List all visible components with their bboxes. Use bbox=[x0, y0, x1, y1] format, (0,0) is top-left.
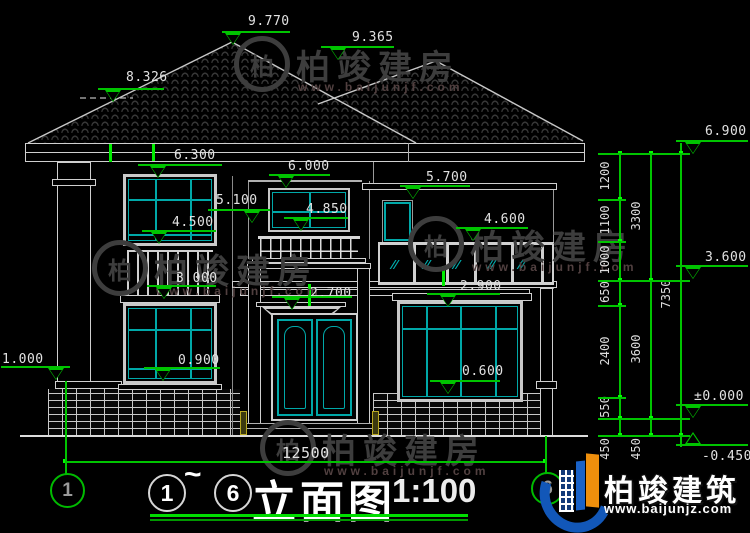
dim-label: 450 bbox=[598, 427, 612, 471]
elevation-label: 0.600 bbox=[462, 364, 504, 379]
elevation-triangle bbox=[155, 369, 171, 381]
watermark-monogram-icon: 柏 bbox=[408, 216, 464, 272]
elevation-label: -0.450 bbox=[702, 449, 750, 464]
elevation-label: ±0.000 bbox=[694, 389, 744, 404]
overall-dim-label: 12500 bbox=[282, 444, 330, 462]
dim-label: 3600 bbox=[629, 327, 643, 371]
dim-tick bbox=[598, 241, 626, 243]
axis-start-number: 1 bbox=[161, 480, 174, 507]
elevation-label: 2.900 bbox=[460, 279, 502, 294]
elevation-label: 5.100 bbox=[216, 193, 258, 208]
elevation-label: 0.900 bbox=[178, 353, 220, 368]
elevation-label: 4.850 bbox=[306, 202, 348, 217]
elevation-triangle bbox=[105, 90, 121, 102]
elevation-triangle bbox=[293, 219, 309, 231]
elevation-triangle bbox=[48, 368, 64, 380]
dim-tick bbox=[598, 435, 690, 437]
title-tilde: ~ bbox=[184, 458, 202, 492]
elevation-triangle bbox=[405, 187, 421, 199]
elevation-triangle bbox=[440, 382, 456, 394]
elevation-triangle bbox=[278, 176, 294, 188]
elevation-level-line bbox=[676, 444, 748, 446]
elevation-level-line bbox=[427, 293, 500, 295]
dim-tick bbox=[598, 280, 690, 282]
logo-building-icon bbox=[559, 470, 574, 512]
dim-label: 7350 bbox=[659, 272, 673, 316]
elevation-label: 3.600 bbox=[705, 250, 747, 265]
elevation-triangle bbox=[330, 48, 346, 60]
watermark-monogram-icon: 柏 bbox=[234, 36, 290, 92]
dim-tick bbox=[598, 305, 626, 307]
elevation-triangle bbox=[225, 33, 241, 45]
elevation-level-line bbox=[208, 209, 270, 211]
grid-bubble: 1 bbox=[50, 473, 85, 508]
watermark-url: www.baijunjf.com bbox=[472, 260, 638, 274]
elevation-label: 9.770 bbox=[248, 14, 290, 29]
axis-end-number: 6 bbox=[227, 480, 240, 507]
elevation-triangle bbox=[685, 406, 701, 418]
elevation-label: 6.900 bbox=[705, 124, 747, 139]
elevation-label: 5.700 bbox=[426, 170, 468, 185]
elevation-triangle bbox=[685, 267, 701, 279]
elevation-triangle bbox=[284, 298, 300, 310]
elevation-label: 4.600 bbox=[484, 212, 526, 227]
elevation-triangle-up bbox=[685, 432, 701, 444]
elevation-label: 8.326 bbox=[126, 70, 168, 85]
grid-extension-line bbox=[65, 381, 67, 474]
logo-url: www.baijunjz.com bbox=[604, 501, 732, 516]
elevation-label: 9.365 bbox=[352, 30, 394, 45]
elevation-label: 6.300 bbox=[174, 148, 216, 163]
dim-label: 650 bbox=[598, 270, 612, 314]
dim-tick bbox=[598, 199, 626, 201]
elevation-label: 6.000 bbox=[288, 159, 330, 174]
dim-label: 450 bbox=[629, 427, 643, 471]
dim-tick bbox=[598, 418, 690, 420]
logo-building-blue bbox=[576, 461, 585, 511]
dim-label: 3300 bbox=[629, 194, 643, 238]
dim-label: 550 bbox=[598, 385, 612, 429]
elevation-triangle bbox=[150, 166, 166, 178]
title-underline-2 bbox=[150, 519, 468, 521]
drawing-scale: 1:100 bbox=[392, 472, 476, 510]
dim-chain-line bbox=[680, 143, 682, 447]
elevation-triangle bbox=[151, 232, 167, 244]
title-axis-start-bubble: 1 bbox=[148, 474, 186, 512]
elevation-triangle bbox=[440, 295, 456, 307]
dim-label: 2400 bbox=[598, 329, 612, 373]
dim-chain-line bbox=[619, 153, 621, 435]
elevation-drawing: ∕∕ ∕∕ ∕∕ ∕∕ ∕∕ 9.7709.3658.3266.3006.000… bbox=[0, 0, 750, 533]
dim-chain-line bbox=[650, 153, 652, 435]
elevation-triangle bbox=[465, 229, 481, 241]
elevation-triangle bbox=[156, 287, 172, 299]
dim-tick bbox=[598, 153, 690, 155]
elevation-triangle bbox=[244, 211, 260, 223]
elevation-label: 3.000 bbox=[176, 271, 218, 286]
elevation-label: 4.500 bbox=[172, 215, 214, 230]
watermark-monogram-icon: 柏 bbox=[92, 240, 148, 296]
dim-tick bbox=[598, 397, 626, 399]
elevation-label: 1.000 bbox=[2, 352, 44, 367]
logo-building-orange bbox=[586, 453, 599, 507]
watermark-url: www.baijunjf.com bbox=[298, 80, 464, 94]
grid-extension-line bbox=[545, 436, 547, 473]
elevation-label: 2.700 bbox=[310, 286, 352, 301]
dim-label: 1100 bbox=[598, 198, 612, 242]
dim-label: 1200 bbox=[598, 154, 612, 198]
title-axis-end-bubble: 6 bbox=[214, 474, 252, 512]
title-underline-1 bbox=[150, 514, 468, 517]
